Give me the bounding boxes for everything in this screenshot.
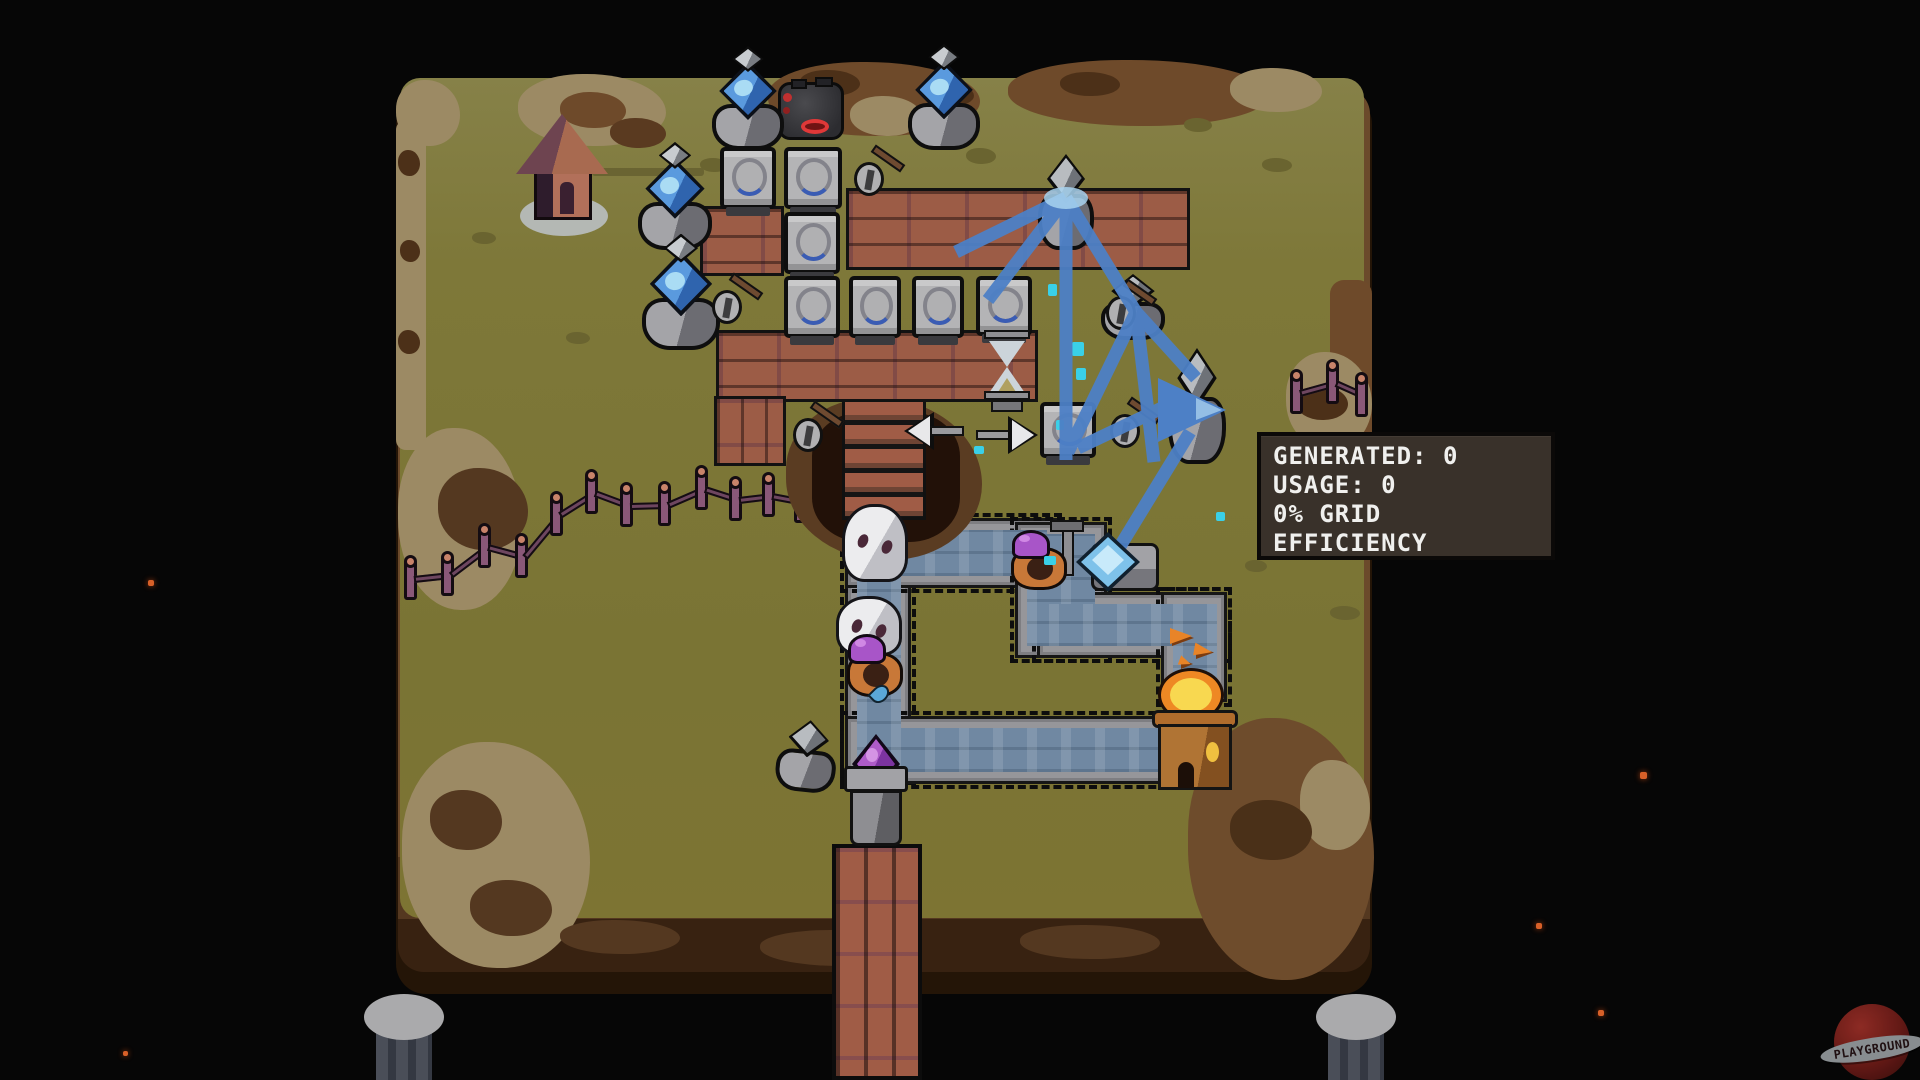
- tooltip-line-efficiency: EFFICIENCY: [1273, 529, 1539, 558]
- stone-block[interactable]: [1091, 543, 1159, 591]
- game-world: [0, 0, 1920, 1080]
- spark-particle: [1072, 342, 1084, 356]
- terrain-patch: [472, 232, 496, 244]
- terrain-patch: [1262, 158, 1292, 172]
- ember-particle: [123, 1051, 128, 1056]
- machine-base: [1046, 456, 1090, 465]
- terrain-patch: [560, 920, 680, 954]
- ghost-eye: [850, 618, 865, 635]
- brazier-door: [1178, 762, 1194, 788]
- support-pillar-cap: [364, 994, 444, 1040]
- fence-right-post-cap: [1290, 369, 1303, 382]
- machine-dial: [988, 287, 1023, 323]
- generator-machine[interactable]: [784, 212, 840, 274]
- hg-pedestal: [991, 400, 1023, 412]
- power-pylon[interactable]: [1038, 154, 1094, 250]
- terrain-patch: [1184, 118, 1212, 132]
- mine-shovel[interactable]: [854, 150, 906, 204]
- house-door: [560, 182, 574, 214]
- crystal-tower[interactable]: [908, 48, 980, 150]
- terrain-patch: [1230, 800, 1312, 860]
- fence-left-post-cap: [695, 465, 708, 478]
- hourglass-timer[interactable]: [984, 330, 1030, 410]
- fence-right-post-cap: [1355, 372, 1368, 385]
- hg-top: [989, 341, 1025, 367]
- generator-machine[interactable]: [976, 276, 1032, 336]
- fence-left-post-cap: [729, 476, 742, 489]
- crystal-tower[interactable]: [642, 238, 720, 350]
- arrow-shaft: [976, 430, 1010, 440]
- wood-walkway: [714, 396, 786, 466]
- machine-dial-arc: [796, 223, 831, 260]
- machine-base: [855, 336, 895, 345]
- machine-dial: [860, 287, 892, 324]
- ghost-eye: [880, 538, 895, 555]
- terrain-patch: [430, 790, 502, 850]
- machine-dial-arc: [923, 287, 955, 324]
- terrain-patch: [398, 330, 420, 354]
- machine-dial-arc: [988, 287, 1023, 323]
- tower-cap: [735, 49, 761, 69]
- mine-shovel[interactable]: [793, 406, 845, 460]
- brazier-jewel: [1206, 742, 1219, 762]
- terrain-patch: [1060, 72, 1120, 96]
- imp-hood: [848, 634, 886, 664]
- red-forge[interactable]: [778, 82, 844, 140]
- pedestal-body: [850, 790, 902, 846]
- machine-dial: [796, 287, 831, 324]
- power-pylon[interactable]: [1168, 348, 1226, 464]
- playground-logo: PLAYGROUND: [1824, 1000, 1920, 1080]
- generator-machine[interactable]: [849, 276, 901, 338]
- machine-base: [726, 207, 770, 216]
- imp-face: [863, 663, 889, 687]
- generator-machine[interactable]: [912, 276, 964, 338]
- machine-dial-arc: [796, 158, 832, 195]
- generator-machine[interactable]: [784, 147, 842, 209]
- mine-shovel[interactable]: [712, 278, 764, 332]
- brazier-tower[interactable]: [1148, 664, 1240, 790]
- hg-cap: [984, 391, 1030, 400]
- tower-cap: [662, 145, 689, 166]
- enemy-ghost[interactable]: [842, 504, 908, 582]
- generator-machine[interactable]: [784, 276, 840, 338]
- machine-dial: [796, 223, 831, 260]
- ember-particle: [1536, 923, 1542, 929]
- ember-particle: [1640, 772, 1647, 779]
- power-grid-tooltip: GENERATED: 0 USAGE: 0 0% GRID EFFICIENCY: [1257, 432, 1555, 560]
- spark-particle: [974, 446, 984, 454]
- ember-particle: [1598, 1010, 1604, 1016]
- brazier-body: [1158, 724, 1232, 790]
- mine-shovel[interactable]: [1110, 402, 1162, 456]
- machine-dial-arc: [796, 287, 831, 324]
- spark-particle: [1216, 512, 1225, 521]
- watch-house[interactable]: [514, 114, 610, 240]
- fence-left-post-cap: [478, 523, 491, 536]
- terrain-patch: [1330, 606, 1360, 620]
- imp-worker[interactable]: [1008, 530, 1070, 592]
- forge-vent: [815, 77, 833, 87]
- machine-dial: [732, 158, 767, 195]
- forge-glow-ring: [801, 119, 829, 134]
- gate-crystal-shine: [866, 748, 878, 762]
- fence-left-post-cap: [515, 533, 528, 546]
- fence-left-post-cap: [620, 482, 633, 495]
- tower-cap: [931, 47, 957, 67]
- machine-dial: [796, 158, 832, 195]
- fence-right-post-cap: [1326, 359, 1339, 372]
- fence-left-post-cap: [762, 472, 775, 485]
- terrain-patch: [1230, 68, 1322, 112]
- pylon-cap: [1050, 158, 1081, 198]
- machine-dial-arc: [732, 158, 767, 195]
- machine-dial: [923, 287, 955, 324]
- power-pylon[interactable]: [773, 717, 840, 795]
- terrain-patch: [400, 240, 420, 262]
- fence-left-post-cap: [585, 469, 598, 482]
- fence-left-post-cap: [441, 551, 454, 564]
- flame-inner: [1170, 678, 1212, 712]
- machine-base: [790, 336, 834, 345]
- spark-particle: [1048, 284, 1057, 296]
- terrain-patch: [1245, 560, 1267, 572]
- forge-light: [783, 107, 790, 114]
- spark-particle: [1044, 556, 1056, 565]
- game-viewport: GENERATED: 0 USAGE: 0 0% GRID EFFICIENCY…: [0, 0, 1920, 1080]
- pedestal-top: [844, 766, 908, 792]
- mine-ladder: [842, 398, 926, 520]
- wood-bridge: [832, 844, 922, 1080]
- machine-dial-arc: [860, 287, 892, 324]
- arrow-shaft: [930, 426, 964, 436]
- fence-left-post-cap: [404, 555, 417, 568]
- fence-right-post: [1355, 377, 1368, 417]
- gate-crystal-tower[interactable]: [842, 734, 912, 848]
- fence-left-post-cap: [658, 481, 671, 494]
- pylon-cap: [1181, 353, 1213, 402]
- spark-particle: [1056, 420, 1064, 430]
- tower-cap: [667, 237, 695, 259]
- mine-shovel[interactable]: [1106, 284, 1158, 338]
- house-roof: [516, 114, 608, 174]
- ghost-eye: [856, 532, 871, 549]
- terrain-patch: [398, 150, 420, 176]
- forge-light: [783, 93, 792, 102]
- terrain-patch: [610, 118, 666, 148]
- tooltip-line-generated: GENERATED: 0: [1273, 442, 1539, 471]
- fence-left-post-cap: [550, 491, 563, 504]
- machine-base: [918, 336, 958, 345]
- imp-hood: [1012, 530, 1050, 559]
- generator-machine[interactable]: [1040, 402, 1096, 458]
- crystal-tower[interactable]: [638, 146, 712, 250]
- generator-machine[interactable]: [720, 147, 776, 209]
- hg-cap: [984, 330, 1030, 339]
- tooltip-line-grid: 0% GRID: [1273, 500, 1539, 529]
- spark-particle: [1076, 368, 1086, 380]
- crystal-tower[interactable]: [712, 50, 784, 150]
- forge-vent: [791, 79, 807, 89]
- terrain-patch: [566, 332, 590, 344]
- tooltip-line-usage: USAGE: 0: [1273, 471, 1539, 500]
- terrain-patch: [1020, 925, 1160, 959]
- support-pillar-cap: [1316, 994, 1396, 1040]
- terrain-patch: [470, 880, 552, 936]
- terrain-patch: [966, 148, 996, 164]
- ember-particle: [148, 580, 154, 586]
